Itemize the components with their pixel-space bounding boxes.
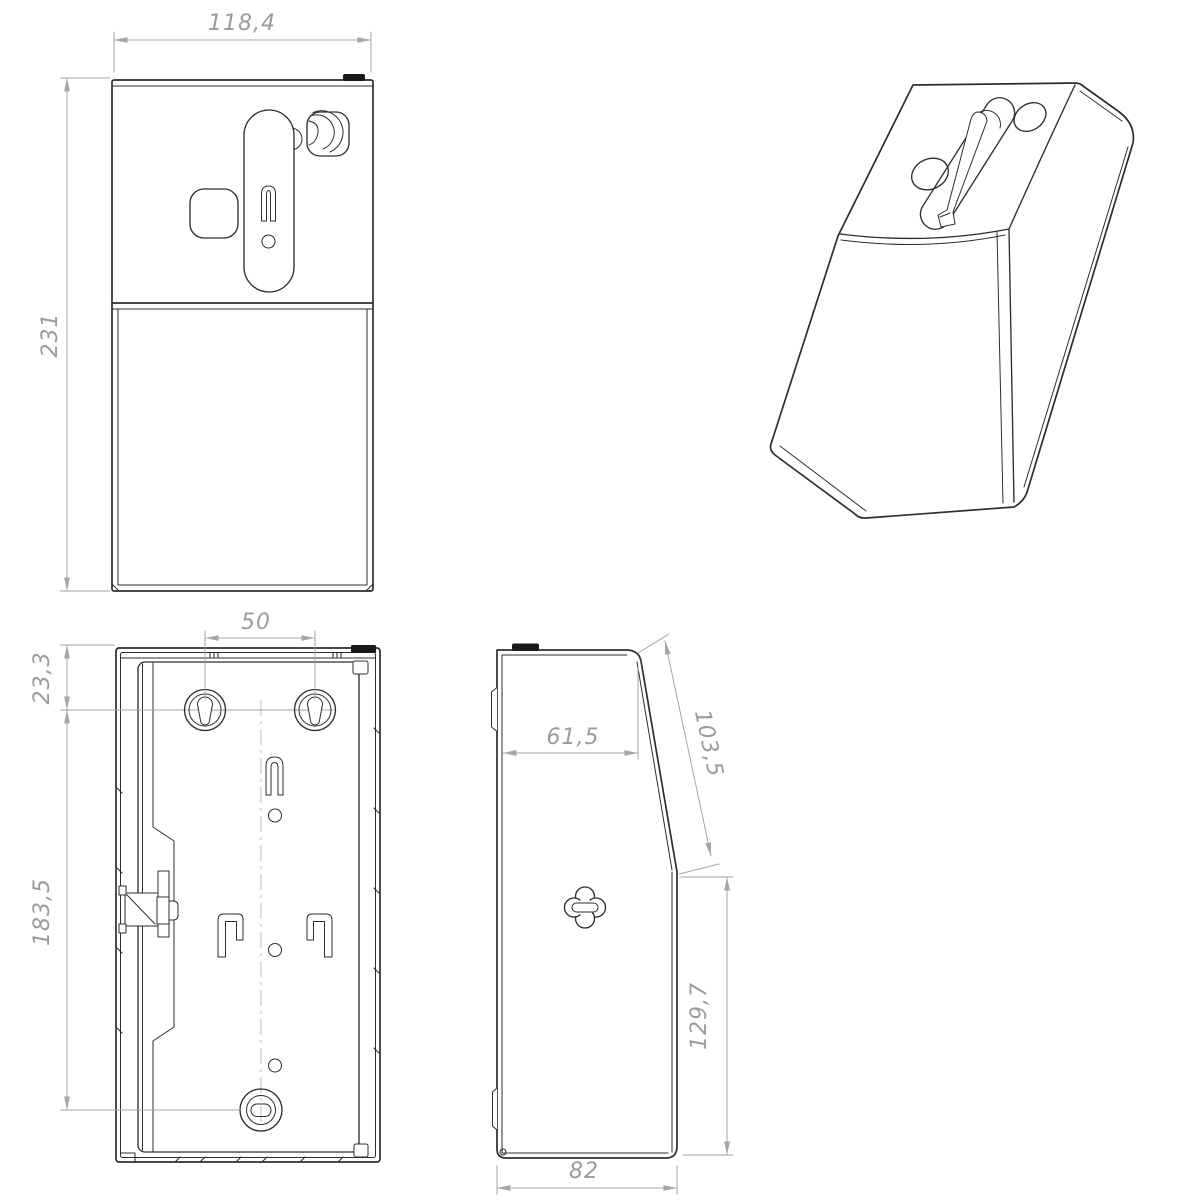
dim-value-hole-spacing: 50 — [241, 610, 271, 635]
front-view — [112, 74, 373, 591]
dim-value-depth: 82 — [569, 1159, 599, 1184]
dim-value-slant-length: 103,5 — [689, 708, 728, 780]
dim-side-depth: 82 — [497, 1159, 677, 1194]
dim-ext-line — [679, 864, 719, 874]
dim-side-front-height: 129,7 — [680, 877, 733, 1155]
latch-cap — [169, 901, 178, 920]
latch-tab-bottom — [119, 924, 126, 933]
side-top-latch-tab — [512, 644, 539, 652]
dim-ext-line — [638, 634, 669, 653]
dim-rear-top-offset: 23,3 — [30, 645, 114, 710]
latch-plate — [157, 897, 169, 924]
side-latch-bump-bottom — [493, 1088, 498, 1130]
latch-tab-top — [119, 886, 126, 895]
dim-value-front-width: 118,4 — [208, 11, 276, 36]
lock-knob-center — [577, 899, 594, 916]
front-top-latch-tab — [343, 74, 365, 81]
dim-value-front-height: 231 — [38, 313, 63, 358]
dim-value-top-depth: 61,5 — [547, 725, 600, 750]
dim-value-lock-offset: 183,5 — [30, 878, 55, 946]
dim-front-height: 231 — [38, 78, 110, 591]
rear-corner-clip-top — [353, 661, 368, 674]
side-latch-bump-top — [492, 688, 498, 732]
dim-value-front-face-height: 129,7 — [687, 982, 712, 1050]
side-view — [492, 644, 678, 1159]
iso-silhouette — [771, 83, 1134, 518]
technical-drawing-sheet: 118,4 231 — [0, 0, 1200, 1200]
front-window-cutout — [190, 189, 238, 238]
rear-view — [60, 645, 380, 1162]
drawing-svg: 118,4 231 — [0, 0, 1200, 1200]
dim-value-top-offset: 23,3 — [30, 652, 55, 705]
rear-corner-clip-bottom — [354, 1144, 368, 1157]
dim-front-width: 118,4 — [114, 11, 371, 72]
rear-top-latch-tab — [351, 645, 376, 653]
isometric-view — [771, 83, 1134, 518]
front-dispense-slot — [244, 110, 294, 292]
